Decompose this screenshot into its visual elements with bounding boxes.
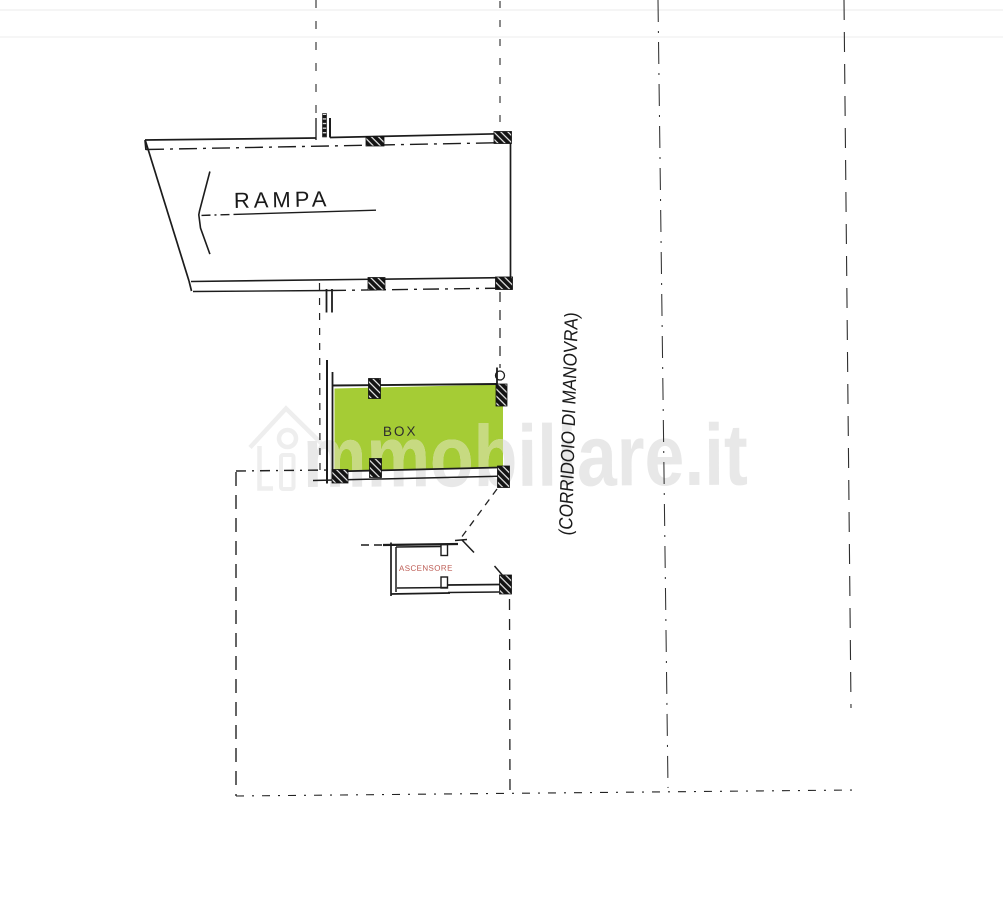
svg-text:BOX: BOX [383, 424, 418, 439]
svg-text:ASCENSORE: ASCENSORE [399, 564, 453, 573]
svg-text:RAMPA: RAMPA [234, 186, 331, 213]
